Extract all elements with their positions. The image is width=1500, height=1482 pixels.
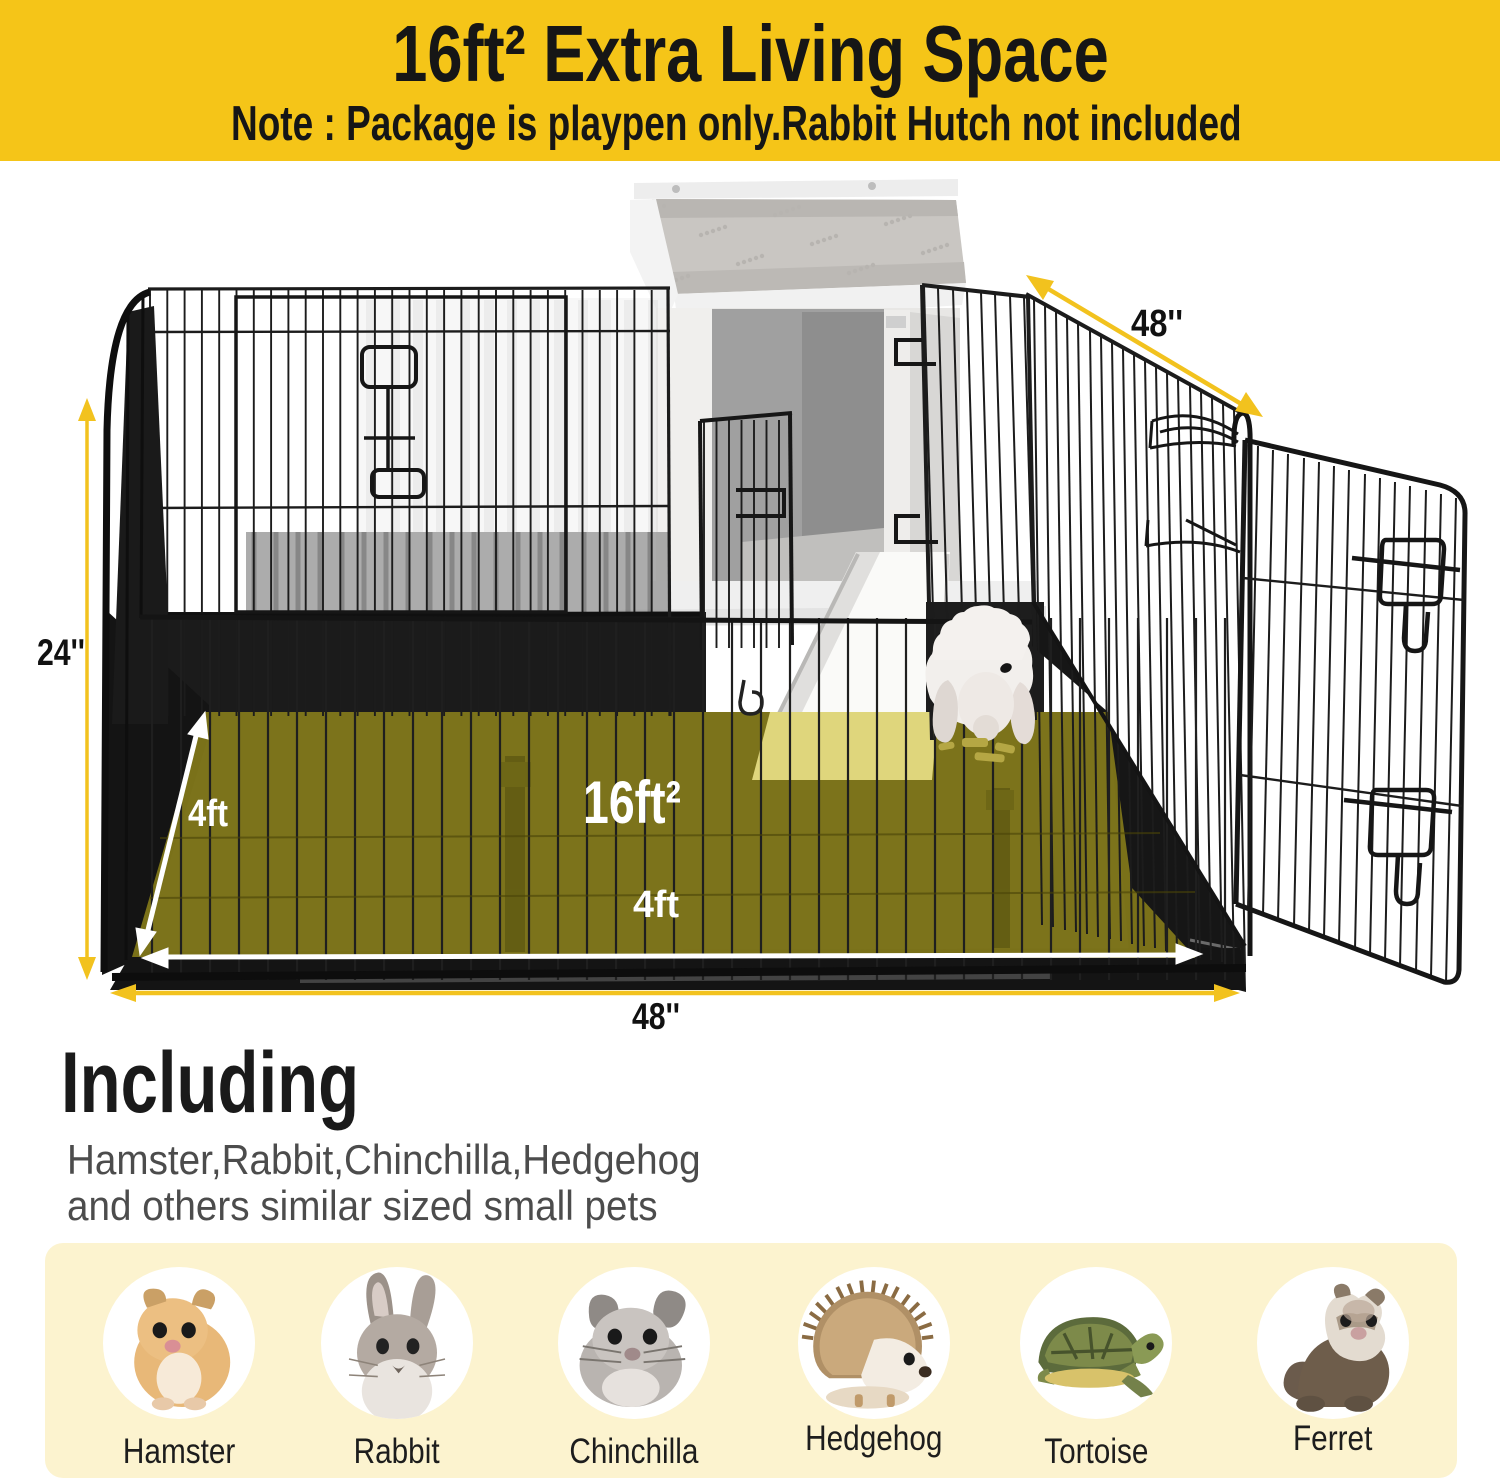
svg-text:16ft²: 16ft² — [583, 769, 681, 836]
svg-text:24'': 24'' — [37, 632, 85, 673]
svg-text:4ft: 4ft — [633, 884, 679, 926]
svg-text:4ft: 4ft — [188, 793, 228, 835]
svg-text:48'': 48'' — [632, 996, 680, 1037]
svg-text:48'': 48'' — [1131, 303, 1183, 345]
